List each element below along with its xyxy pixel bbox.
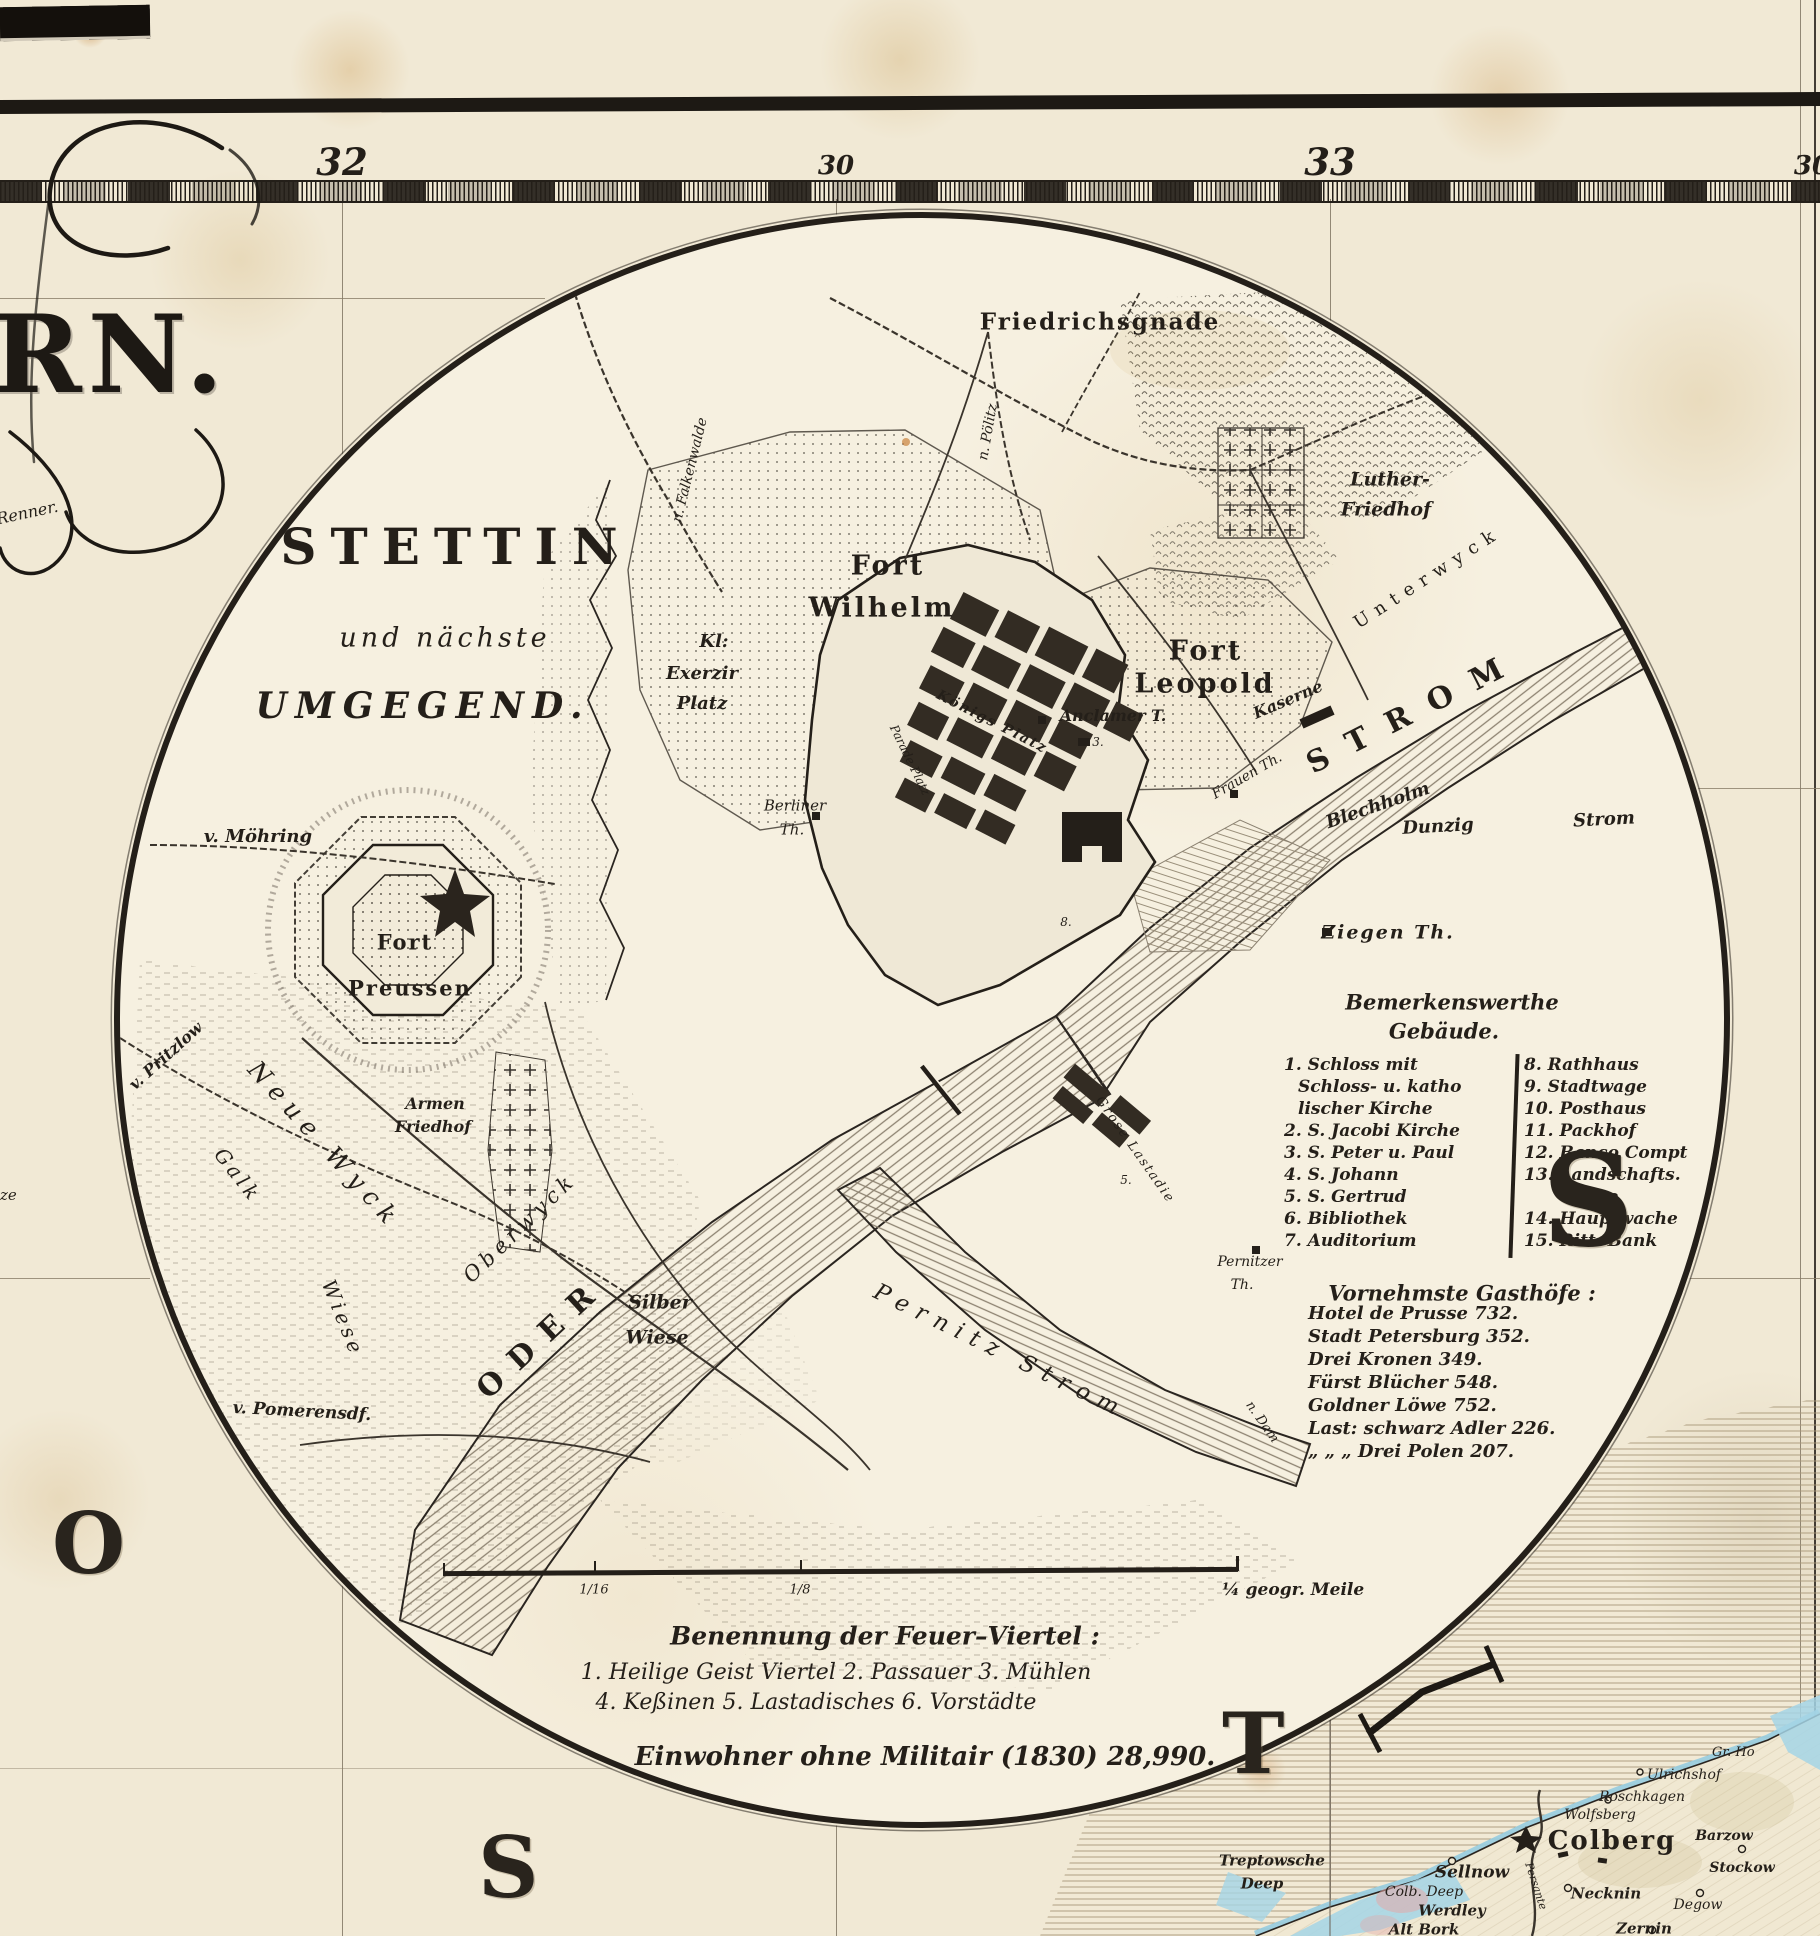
scale-label-quarter-meile: ¼ geogr. Meile: [1222, 1582, 1364, 1599]
place-label-armen-friedhof: Armen: [405, 1096, 465, 1112]
place-label-fort-wilhelm: Wilhelm: [809, 595, 956, 622]
legend-item: Schloss- u. katho: [1284, 1076, 1461, 1098]
place-label-fort-preussen: Fort: [377, 932, 434, 953]
fire-quarters-heading: Benennung der Feuer–Viertel :: [670, 1624, 1100, 1649]
coast-label-degow: Degow: [1674, 1898, 1723, 1912]
legend-item: 3. S. Peter u. Paul: [1284, 1142, 1461, 1164]
building-number: 5.: [1120, 1174, 1131, 1186]
coast-label-werdley: Werdley: [1418, 1904, 1486, 1919]
place-label-kl-exerzir-platz: Platz: [677, 695, 728, 713]
building-number: 8.: [1060, 916, 1071, 928]
hotel-item: Fürst Blücher 548.: [1308, 1371, 1555, 1394]
legend-title: Bemerkenswerthe: [1345, 992, 1559, 1013]
scale-label-sixteenth: 1/16: [579, 1584, 608, 1597]
sea-letter-t: T: [1222, 1694, 1285, 1793]
coast-label-colberg: Colberg: [1548, 1828, 1677, 1854]
longitude-label: 32: [316, 140, 368, 184]
coast-label-zernin: Zernin: [1616, 1922, 1672, 1936]
sea-letter-s: S: [478, 1818, 539, 1917]
legend-item: 6. Bibliothek: [1284, 1208, 1461, 1230]
legend-item: 2. S. Jacobi Kirche: [1284, 1120, 1461, 1142]
hotels-title: Vornehmste Gasthöfe :: [1328, 1283, 1596, 1304]
legend-item: 1. Schloss mit: [1284, 1054, 1461, 1076]
longitude-label: 30: [818, 151, 854, 181]
hotel-item: Drei Kronen 349.: [1308, 1348, 1555, 1371]
hotels-list: Hotel de Prusse 732. Stadt Petersburg 35…: [1308, 1302, 1555, 1463]
legend-left-column: 1. Schloss mit Schloss- u. katho lischer…: [1284, 1054, 1461, 1252]
longitude-label: 33: [1304, 140, 1356, 184]
edge-text-fragment: ze: [0, 1188, 17, 1203]
building-number: 3.: [1092, 736, 1103, 748]
parnitz-channel: [838, 1168, 1310, 1486]
coast-label-stockow: Stockow: [1709, 1861, 1775, 1875]
gate-label-pernitzer-thor: Th.: [1231, 1278, 1254, 1292]
coast-label-gr-ho: Gr. Ho: [1712, 1746, 1755, 1759]
inset-subtitle-2: UMGEGEND.: [256, 688, 591, 724]
place-label-fort-wilhelm: Fort: [851, 553, 925, 580]
coast-label-sellnow: Sellnow: [1435, 1865, 1509, 1882]
legend-item: 10. Posthaus: [1524, 1098, 1687, 1120]
fire-quarters-line-2: 4. Keßinen 5. Lastadisches 6. Vorstädte: [596, 1692, 1037, 1714]
legend-item: 5. S. Gertrud: [1284, 1186, 1461, 1208]
coast-label-colb-deep: Colb. Deep: [1385, 1885, 1463, 1899]
coast-label-treptowsche-deep: Deep: [1241, 1877, 1284, 1892]
place-label-v-moehring: v. Möhring: [204, 828, 312, 846]
longitude-label: 30: [1794, 151, 1820, 181]
hotel-item: Hotel de Prusse 732.: [1308, 1302, 1555, 1325]
coast-label-treptowsche-deep: Treptowsche: [1219, 1854, 1325, 1869]
scale-tick: [594, 1561, 596, 1572]
scale-tick: [800, 1560, 802, 1572]
legend-item: 8. Rathhaus: [1524, 1054, 1687, 1076]
legend-title: Gebäude.: [1389, 1021, 1499, 1042]
river-label-dunzig-strom: Strom: [1573, 809, 1636, 830]
gate-label-pernitzer-thor: Pernitzer: [1217, 1255, 1282, 1269]
sea-letter-s-large: S: [1542, 1126, 1634, 1276]
legend-item: lischer Kirche: [1284, 1098, 1461, 1120]
place-label-fort-preussen: Preussen: [348, 978, 472, 999]
hotel-item: Goldner Löwe 752.: [1308, 1394, 1555, 1417]
inset-subtitle-1: und nächste: [339, 625, 550, 652]
place-label-friedrichsgnade: Friedrichsgnade: [980, 311, 1220, 334]
place-label-armen-friedhof: Friedhof: [395, 1119, 471, 1135]
place-label-silber-wiese: Wiese: [625, 1329, 688, 1348]
river-label-dunzig: Dunzig: [1402, 816, 1474, 838]
place-label-kl-exerzir-platz: Exerzir: [666, 665, 738, 683]
gate-label-ziegen-thor: Ziegen Th.: [1321, 924, 1455, 943]
gate-label-berliner-thor: Th.: [780, 823, 804, 838]
fire-quarters-line-1: 1. Heilige Geist Viertel 2. Passauer 3. …: [581, 1662, 1092, 1684]
place-label-luther-friedhof: Luther-: [1350, 471, 1430, 490]
scale-tick: [443, 1563, 445, 1572]
scale-tick: [1236, 1556, 1239, 1571]
gate-label-anclamer-thor: Anclamer T.: [1060, 708, 1167, 724]
foxing-spot: [902, 438, 910, 446]
legend-item: 7. Auditorium: [1284, 1230, 1461, 1252]
place-label-kl-exerzir-platz: Kl:: [699, 633, 728, 651]
coast-label-wolfsberg: Wolfsberg: [1564, 1808, 1636, 1822]
legend-item: 9. Stadtwage: [1524, 1076, 1687, 1098]
coast-label-ulrichshof: Ulrichshof: [1647, 1768, 1721, 1782]
place-label-luther-friedhof: Friedhof: [1341, 501, 1431, 520]
coast-label-alt-bork: Alt Bork: [1389, 1923, 1459, 1936]
population-note: Einwohner ohne Militair (1830) 28,990.: [635, 1744, 1216, 1770]
map-sheet: 32 30 33 30 RN. Renner. ze: [0, 0, 1820, 1936]
place-label-fort-leopold: Fort: [1169, 638, 1243, 665]
coast-label-necknin: Necknin: [1571, 1887, 1641, 1902]
place-label-silber-wiese: Silber: [628, 1294, 692, 1313]
hotel-item: „ „ „ Drei Polen 207.: [1308, 1440, 1555, 1463]
hotel-item: Last: schwarz Adler 226.: [1308, 1417, 1555, 1440]
scale-label-eighth: 1/8: [790, 1584, 811, 1597]
sea-letter-o: O: [52, 1494, 125, 1593]
place-label-fort-leopold: Leopold: [1134, 671, 1275, 698]
coast-label-roschkagen: Roschkagen: [1599, 1790, 1685, 1804]
hotel-item: Stadt Petersburg 352.: [1308, 1325, 1555, 1348]
gate-label-berliner-thor: Berliner: [764, 799, 826, 814]
coast-label-barzow: Barzow: [1695, 1829, 1753, 1843]
legend-item: 4. S. Johann: [1284, 1164, 1461, 1186]
inset-title: STETTIN: [280, 522, 631, 572]
luther-friedhof-cemetery: [1218, 428, 1304, 538]
